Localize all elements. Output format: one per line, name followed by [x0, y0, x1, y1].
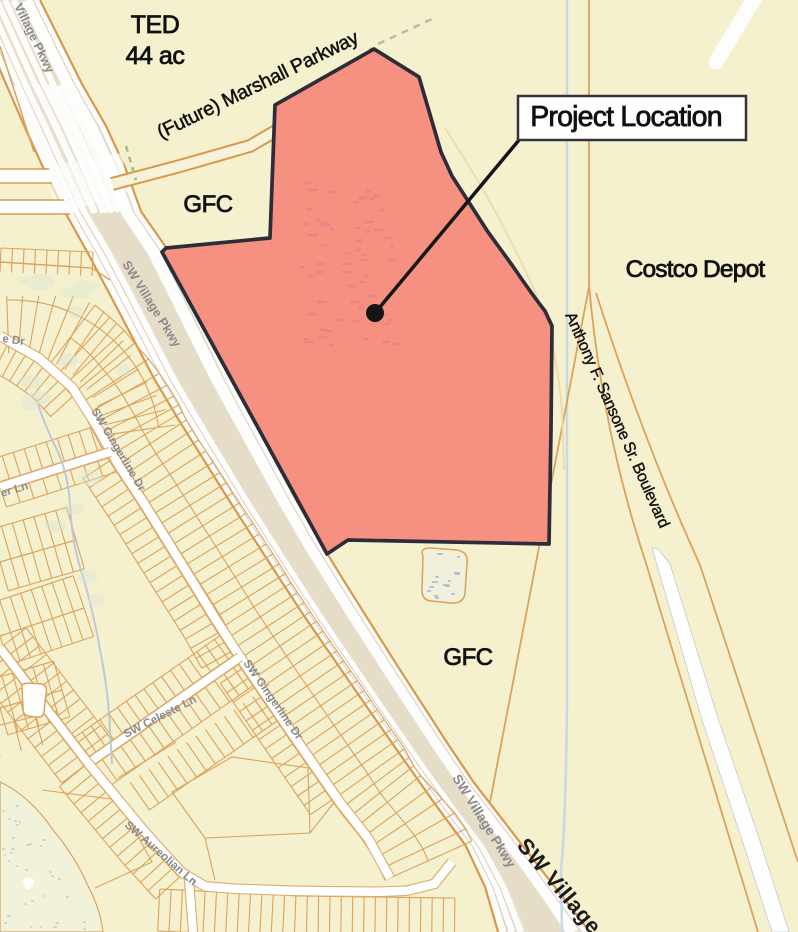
svg-text:Costco Depot: Costco Depot	[626, 256, 766, 283]
svg-text:44 ac: 44 ac	[126, 42, 185, 70]
svg-text:TED: TED	[131, 11, 180, 39]
svg-text:GFC: GFC	[183, 191, 232, 218]
svg-text:Project Location: Project Location	[530, 101, 722, 133]
svg-text:GFC: GFC	[443, 644, 492, 671]
